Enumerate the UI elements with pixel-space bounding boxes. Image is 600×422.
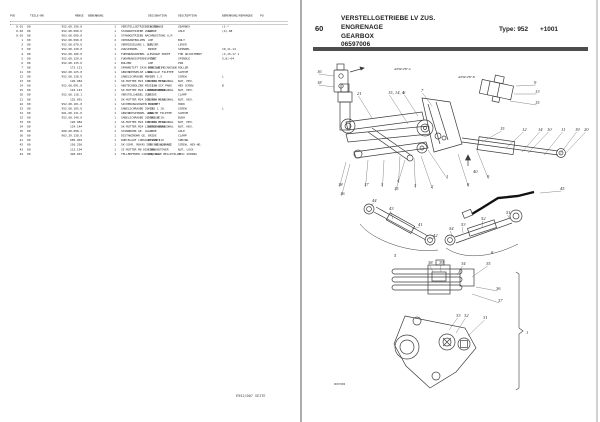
callout-leader-line — [522, 132, 540, 152]
table-cell: 00 — [27, 57, 30, 61]
table-row: 4400420.6531TELLERFEDER C40X20, 4X1RONDE… — [10, 152, 302, 157]
table-cell: 961.68.131.0 — [38, 111, 82, 115]
table-cell: 00 — [27, 80, 30, 84]
table-cell: FUEHRUNGSHEBEL L — [121, 52, 148, 56]
table-cell: 125.091 — [38, 98, 82, 102]
table-cell: 0.02 — [10, 30, 23, 34]
column-header: MENGE — [75, 14, 84, 18]
table-cell: 00 — [27, 61, 30, 65]
table-cell: SPINDLE — [178, 57, 190, 61]
hydraulic-hose — [462, 192, 534, 218]
callout-number: 15 — [500, 126, 505, 131]
table-cell: NUT, HEX. — [178, 80, 193, 84]
table-cell: 00 — [27, 98, 30, 102]
header-divider-bar — [313, 47, 588, 51]
scanned-catalog-page: { "left_page": { "header_cols": ["POS","… — [0, 0, 600, 422]
table-cell: 00 — [27, 34, 30, 38]
table-cell: STANDGETRIEBE NACHRUESTUNG U,M — [121, 34, 172, 38]
callout-number: 40 — [473, 169, 478, 174]
table-cell: 124.144 — [38, 125, 82, 129]
table-cell: LEVRAGE PORTE — [148, 52, 170, 56]
table-cell: 1 — [105, 34, 116, 38]
table-cell: (1-* — [222, 25, 229, 29]
table-cell: BRIDE — [148, 48, 157, 52]
table-cell: 00 — [27, 116, 30, 120]
callout-number: 15 — [535, 100, 540, 105]
table-cell: CLAMP — [178, 134, 187, 138]
column-header: BEMERKUNG/REMARQUE — [222, 14, 253, 18]
table-cell: 00 — [27, 66, 30, 70]
title-line-de: VERSTELLGETRIEBE LV ZUS. — [341, 15, 435, 24]
table-cell: 33 — [10, 120, 23, 124]
callout-number: 41 — [418, 222, 423, 227]
table-cell: 952.68.138.0 — [38, 75, 82, 79]
column-header: POS — [10, 14, 15, 18]
table-cell: 962.68.125.0 — [38, 70, 82, 74]
table-cell: 15 — [10, 89, 23, 93]
table-cell: 1 — [105, 52, 116, 56]
table-cell: 43 — [10, 148, 23, 152]
diagram-svg: 1618913152115, 14, 467151214101119201816… — [310, 56, 600, 404]
table-cell: SLEEVE — [178, 111, 188, 115]
group-brace — [516, 272, 523, 390]
table-cell: 963.29.138.0 — [38, 134, 82, 138]
callout-number: 38 — [428, 260, 433, 265]
table-cell: CLAMP — [178, 93, 187, 97]
table-cell: 00 — [27, 84, 30, 88]
callout-leader-line — [506, 132, 524, 148]
table-cell: 36 — [10, 134, 23, 138]
table-cell: 952.68.070.0 — [38, 43, 82, 47]
callout-leader-line — [463, 227, 464, 233]
table-cell: ECROU HEXAGONAL — [148, 125, 174, 129]
table-cell: 00 — [27, 48, 30, 52]
callout-number: 12 — [522, 127, 527, 132]
table-cell: (4,15-17 1 — [222, 52, 239, 56]
table-cell: RONDELLE BELLEVILLE — [148, 152, 180, 156]
table-cell: 12 — [10, 75, 23, 79]
bottom-bracket — [394, 316, 476, 388]
table-cell: 34 — [10, 125, 23, 129]
table-cell: 41 — [10, 139, 23, 143]
callout-number: 13 — [535, 89, 540, 94]
title-line-fr: ENGRENAGE — [341, 24, 435, 33]
callout-number: 54 — [449, 226, 454, 231]
section-number: 60 — [315, 24, 323, 33]
table-cell: 21 — [10, 98, 23, 102]
table-cell: 00 — [27, 139, 30, 143]
table-cell: 1 — [105, 43, 116, 47]
table-cell: 11 — [10, 70, 23, 74]
table-cell: SPRING — [178, 139, 188, 143]
table-cell: DISC SPRING — [178, 152, 197, 156]
callout-number: 1 — [526, 330, 528, 335]
callout-number: 34 — [461, 261, 466, 266]
table-cell: 00 — [27, 93, 30, 97]
table-cell: SLEEVE — [178, 70, 188, 74]
callout-leader-line — [319, 74, 335, 76]
table-cell: ECROU HEXAGONAL — [148, 89, 174, 93]
table-cell: 00 — [27, 70, 30, 74]
callout-number: 52 — [481, 216, 486, 221]
table-cell: ARBRE — [148, 130, 157, 134]
table-cell: VIS — [148, 107, 153, 111]
table-cell: GABELSCHRAUBE M8-170 1.5 — [121, 75, 162, 79]
table-cell: GABELSCHRAUBE 20-165 1 10. — [121, 107, 165, 111]
callout-number: 36 — [496, 286, 501, 291]
callout-number: 45 — [560, 186, 565, 191]
table-cell: 22 — [10, 102, 23, 106]
table-cell: 112.194 — [38, 148, 82, 152]
table-cell: 5,8)-04 — [222, 57, 234, 61]
callout-number: 15 — [394, 186, 399, 191]
callout-number: 32 — [464, 313, 469, 318]
table-cell: 00 — [27, 111, 30, 115]
diagram-caption: 06597006 — [334, 383, 346, 386]
table-cell: 5 — [10, 57, 23, 61]
callout-leader-line — [516, 85, 536, 86]
table-cell: 1 — [105, 116, 116, 120]
table-cell: 952.68.135.0 — [38, 61, 82, 65]
table-cell: GEARBOX — [178, 25, 190, 29]
table-cell: 952.68.130.0 — [38, 48, 82, 52]
callout-leader-line — [528, 132, 549, 153]
callout-leader-line — [428, 150, 448, 179]
table-cell: VIS A SIX PANS — [148, 84, 172, 88]
table-cell: PIVOT — [148, 57, 157, 61]
table-cell: FOR ADJUSTMENT — [178, 52, 202, 56]
table-cell: SCREW — [178, 75, 187, 79]
table-cell: 1 — [105, 125, 116, 129]
table-cell: 120.984 — [38, 120, 82, 124]
table-cell: 952.68.090.0 — [38, 39, 82, 43]
table-cell: NUT, HEX. — [178, 125, 193, 129]
table-cell: 00 — [27, 30, 30, 34]
callout-number: 14 — [538, 127, 543, 132]
callout-number: 51 — [506, 210, 511, 215]
table-cell: BRIDE — [148, 93, 157, 97]
table-cell: 952.68.105.0 — [38, 107, 82, 111]
callout-leader-line — [456, 318, 466, 333]
table-cell: ENGRENAGE — [148, 25, 163, 29]
callout-number: 17 — [364, 182, 369, 187]
table-cell: AXLE — [178, 130, 185, 134]
table-cell: 952.68.190.0 — [38, 25, 82, 29]
table-cell: 685.903 — [38, 139, 82, 143]
title-line-en: GEARBOX — [341, 33, 435, 42]
table-cell: DOUILLE — [148, 116, 160, 120]
column-header: DESCRIPTION — [178, 14, 197, 18]
table-cell: 1 — [105, 120, 116, 124]
main-assembly — [338, 84, 566, 166]
table-cell: VIS — [148, 75, 153, 79]
table-cell: 963.68.090.0 — [38, 34, 82, 38]
table-cell: NUT, HEX. — [178, 120, 193, 124]
callout-leader-line — [476, 287, 498, 291]
column-header: PU — [260, 14, 263, 18]
table-cell: 172.121 — [38, 66, 82, 70]
column-header: TEILE-NR — [30, 14, 44, 18]
table-cell: 1 — [105, 98, 116, 102]
callout-number: 18 — [338, 182, 343, 187]
table-cell: 10,11-14 — [222, 48, 236, 52]
table-cell: 32 — [10, 116, 23, 120]
table-cell: 00 — [27, 148, 30, 152]
table-cell: 00 — [27, 152, 30, 156]
table-cell: 0.03 — [10, 34, 23, 38]
table-cell: NUT, HEX. — [178, 89, 193, 93]
table-cell: AXE — [148, 39, 153, 43]
table-cell: L — [222, 75, 224, 79]
table-cell: 952.68.100.0 — [38, 52, 82, 56]
table-cell: 00 — [27, 125, 30, 129]
callout-leader-line — [319, 85, 335, 87]
callout-number: 8 — [467, 182, 470, 187]
table-cell: 00 — [27, 134, 30, 138]
table-cell: 31 — [10, 111, 23, 115]
table-cell: 952.68.091.0 — [38, 84, 82, 88]
table-cell: 2 — [105, 39, 116, 43]
table-cell: CROCHET — [148, 102, 160, 106]
table-cell: 7 — [10, 66, 23, 70]
table-cell: 1 — [105, 89, 116, 93]
view-label: ANSICHT B — [457, 75, 475, 79]
table-cell: 14 — [10, 84, 23, 88]
table-cell: 35 — [10, 130, 23, 134]
table-cell: ECROU HEXAGONAL — [148, 80, 174, 84]
callout-leader-line — [405, 95, 419, 116]
table-rows: 0.0100952.68.190.01VERSTELLGETRIEBE L ZU… — [10, 25, 302, 157]
callout-number: 53 — [461, 222, 466, 227]
table-cell: 1 — [105, 80, 116, 84]
callout-number: 44 — [372, 198, 377, 203]
table-cell: 6 — [10, 61, 23, 65]
table-cell: 1 — [105, 61, 116, 65]
table-cell: 952.68.118.1 — [38, 93, 82, 97]
callout-leader-line — [441, 265, 442, 272]
table-cell: 00 — [27, 89, 30, 93]
table-cell: 00 — [27, 102, 30, 106]
table-cell: 952.68.101.0 — [38, 102, 82, 106]
table-cell: 6 — [105, 66, 116, 70]
callout-leader-line — [482, 131, 502, 142]
table-cell: VIERKANTBOLZEN — [121, 39, 145, 43]
table-cell: HOOK — [178, 102, 185, 106]
table-cell: 1 — [10, 39, 23, 43]
table-cell: BOLT — [178, 39, 185, 43]
table-cell: 1 — [105, 143, 116, 147]
table-cell: 13 — [10, 80, 23, 84]
table-cell: ECROU STOVER — [148, 148, 168, 152]
turnbuckle-left — [360, 204, 438, 251]
callout-number: 16 — [317, 69, 322, 74]
table-cell: DISTANZROHR GE. — [121, 134, 147, 138]
callout-number: 4 — [397, 178, 400, 183]
table-cell: (4)-68 — [222, 30, 232, 34]
table-cell: 00 — [27, 130, 30, 134]
table-cell: 1 — [105, 70, 116, 74]
callout-number: 2 — [431, 184, 434, 189]
table-cell: 16 — [10, 93, 23, 97]
callout-leader-line — [390, 95, 409, 124]
table-cell: 420.653 — [38, 152, 82, 156]
table-cell: 1 — [105, 75, 116, 79]
table-cell: 00 — [27, 39, 30, 43]
table-cell: NUT, LOCK — [178, 148, 193, 152]
callout-number: 19 — [575, 127, 580, 132]
callout-leader-line — [449, 318, 458, 330]
table-cell: SPINDEL — [178, 48, 190, 52]
callout-number: 8 — [491, 250, 494, 255]
table-cell: 1 — [105, 148, 116, 152]
table-cell: 1 — [105, 25, 116, 29]
table-cell: 00 — [27, 43, 30, 47]
table-cell: 960.68.098.1 — [38, 130, 82, 134]
table-cell: 952.68.140.0 — [38, 116, 82, 120]
table-cell: ECROU HEXAGONAL — [148, 120, 174, 124]
table-cell: 0.01 — [10, 25, 23, 29]
table-cell: VIS HEXAGONALE — [148, 143, 172, 147]
callout-number: 9 — [534, 80, 537, 85]
table-cell: 120.984 — [38, 80, 82, 84]
callout-number: 9 — [487, 174, 490, 179]
table-cell: 1 — [105, 107, 116, 111]
callout-number: 20 — [584, 127, 589, 132]
table-cell: 00 — [27, 143, 30, 147]
callout-leader-line — [359, 96, 373, 118]
table-cell: ARBRE — [148, 30, 157, 34]
exploded-diagram: 1618913152115, 14, 467151214101119201816… — [310, 56, 600, 404]
table-cell: RESSORT — [148, 139, 160, 143]
table-cell: 4 — [10, 52, 23, 56]
callout-number: 33 — [456, 313, 461, 318]
callout-number: 3 — [414, 183, 417, 188]
table-cell: 42 — [10, 143, 23, 147]
table-cell: BROCHE FILETEE — [148, 111, 172, 115]
table-cell: DOUILLE FILETEE — [148, 70, 174, 74]
table-cell: HEX SCREW — [178, 84, 193, 88]
table-cell: 1 — [105, 93, 116, 97]
table-cell: BOLZEN — [121, 61, 131, 65]
callout-number: 35 — [486, 261, 491, 266]
table-cell: 1 — [105, 152, 116, 156]
page-footer: E952/007 SEITE — [236, 394, 316, 406]
table-cell: AXE — [148, 61, 153, 65]
table-cell: LEVIER — [148, 43, 158, 47]
table-cell: 103.256 — [38, 143, 82, 147]
callout-leader-line — [540, 191, 562, 193]
table-cell: L — [222, 107, 224, 111]
table-cell: LEVER — [178, 43, 187, 47]
table-cell: 1 — [105, 84, 116, 88]
table-cell: PIN — [178, 61, 183, 65]
callout-leader-line — [451, 231, 453, 237]
table-cell: STANDROHR GE. UL — [121, 130, 148, 134]
callout-leader-line — [472, 294, 500, 303]
table-cell: 3 — [10, 48, 23, 52]
table-cell: SCREW — [178, 107, 187, 111]
callout-number: 7 — [421, 88, 424, 93]
table-header: POSTEILE-NRMENGEBENENNUNGDESIGNATIONDESC… — [10, 14, 302, 21]
table-cell: 23 — [10, 107, 23, 111]
callout-number: 18 — [317, 80, 322, 85]
table-cell: AXLE — [178, 30, 185, 34]
callout-number: 5 — [381, 182, 384, 187]
table-cell: 1 — [105, 111, 116, 115]
table-cell: BUSH — [178, 116, 185, 120]
callout-leader-line — [468, 320, 485, 336]
table-cell: 00 — [27, 120, 30, 124]
callout-leader-line — [510, 101, 537, 105]
view-label: ANSICHT A — [393, 67, 411, 71]
table-cell: 1 — [105, 48, 116, 52]
callout-number: 11 — [561, 127, 565, 132]
callout-number: 42 — [433, 233, 438, 238]
callout-number: 21 — [357, 91, 362, 96]
callout-number: 39 — [439, 260, 444, 265]
table-cell: ZUGSPINDEL — [121, 48, 138, 52]
table-cell: B — [222, 84, 224, 88]
table-cell: NUT, HEX. — [178, 98, 193, 102]
title-block: VERSTELLGETRIEBE LV ZUS. ENGRENAGE GEARB… — [341, 15, 435, 50]
callout-leader-line — [564, 132, 586, 155]
callout-number: 6 — [403, 90, 406, 95]
table-cell: DOUILLE MECANIQUE — [148, 66, 177, 70]
parts-table: POSTEILE-NRMENGEBENENNUNGDESIGNATIONDESC… — [10, 14, 302, 174]
callout-leader-line — [430, 265, 434, 272]
table-cell: 2 — [10, 43, 23, 47]
table-cell: 952.68.120.0 — [38, 57, 82, 61]
serial-range-label: +1001 — [540, 26, 558, 33]
callout-number: 37 — [498, 298, 503, 303]
table-cell: 1 — [105, 57, 116, 61]
column-header: BENENNUNG — [88, 14, 103, 18]
table-cell: ECROU HEXAGONAL — [148, 98, 174, 102]
table-cell: 1 — [105, 134, 116, 138]
callout-leader-line — [482, 221, 483, 227]
callout-number: 31 — [483, 315, 488, 320]
callout-number: 5 — [394, 253, 397, 258]
table-cell: 00 — [27, 25, 30, 29]
table-cell: 1 — [105, 130, 116, 134]
table-cell: SCREW, HEX-HD. — [178, 143, 202, 147]
view-b-assembly — [478, 73, 515, 105]
callout-layer: 1618913152115, 14, 467151214101119201816… — [317, 67, 589, 386]
callout-number: 16 — [340, 191, 345, 196]
table-cell: ROLLER — [178, 66, 188, 70]
table-cell: 00 — [27, 75, 30, 79]
table-cell: 00 — [27, 52, 30, 56]
table-cell: 1 — [105, 102, 116, 106]
column-header: DESIGNATION — [148, 14, 167, 18]
table-cell: 1 — [105, 30, 116, 34]
table-cell: 1 — [105, 139, 116, 143]
table-cell: 00 — [27, 107, 30, 111]
callout-number: 43 — [389, 206, 394, 211]
type-label: Type: 952 — [499, 26, 528, 33]
callout-number: 10 — [547, 127, 552, 132]
table-cell: 44 — [10, 152, 23, 156]
callout-number: 1 — [446, 174, 448, 179]
table-cell: BRIDE — [148, 134, 157, 138]
table-cell: 124.143 — [38, 89, 82, 93]
page-footer-text: E952/007 SEITE — [236, 394, 276, 398]
table-cell: 952.68.090.0 — [38, 30, 82, 34]
